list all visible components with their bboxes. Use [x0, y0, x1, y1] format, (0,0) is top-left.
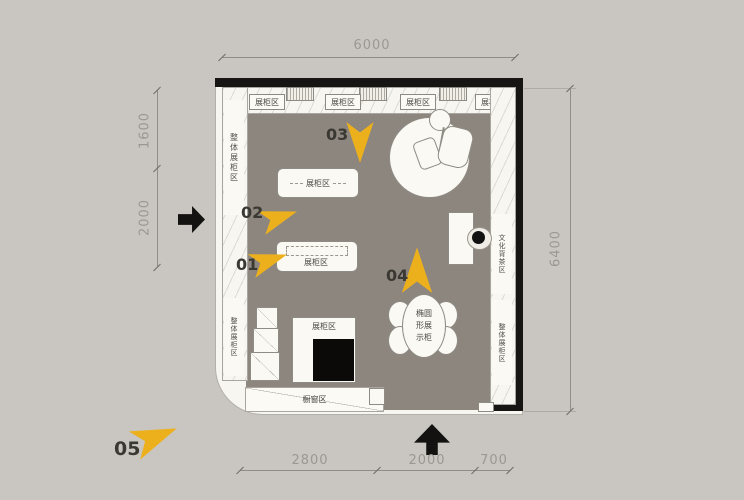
table-inner-dashed — [286, 246, 348, 256]
dim-value-top: 6000 — [342, 38, 402, 53]
dim-line-left — [157, 90, 158, 267]
zone-label-text: 展柜区 — [331, 97, 355, 108]
zone-label-top-cabinet-2: 展柜区 — [325, 94, 361, 110]
step-box-2 — [253, 328, 279, 353]
dim-line-top — [222, 57, 515, 58]
oval-display-label-line2: 形展 — [416, 320, 432, 332]
entrance-post-right — [478, 402, 494, 412]
dim-value-bottom-left: 2800 — [280, 453, 340, 468]
marker-03-label: 03 — [326, 125, 348, 144]
dim-value-bottom-right: 700 — [476, 453, 512, 468]
zone-label-top-cabinet-1: 展柜区 — [249, 94, 285, 110]
dim-value-right: 6400 — [549, 221, 564, 277]
zone-label-top-cabinet-3: 展柜区 — [400, 94, 436, 110]
oval-display-label-line1: 椭圆 — [416, 308, 432, 320]
entrance-post-left — [369, 388, 385, 405]
zone-label-text: 展柜区 — [406, 97, 430, 108]
oval-display-label-line3: 示柜 — [416, 332, 432, 344]
wall-top — [215, 78, 523, 87]
dim-value-bottom-mid: 2000 — [397, 453, 457, 468]
entry-arrow-bottom-icon — [414, 424, 450, 455]
marker-01-label: 01 — [236, 255, 258, 274]
display-table-a-label: 展柜区 — [306, 178, 330, 189]
zone-label-right-lower: 整体展柜区 — [492, 300, 512, 385]
display-table-a: 展柜区 — [277, 168, 359, 198]
zone-label-right-middle: 文化背茶区 — [492, 214, 512, 294]
square-display: 展柜区 — [292, 317, 356, 383]
oval-display-center: 椭圆 形展 示柜 — [402, 294, 446, 358]
marker-03-arrow-icon — [346, 116, 375, 164]
dim-value-left-upper: 1600 — [138, 103, 153, 159]
cabinet-divider-1 — [286, 87, 314, 101]
zone-label-text: 展柜区 — [255, 97, 279, 108]
table-dash — [290, 183, 303, 184]
window-display-strip: 橱窗区 — [245, 387, 384, 412]
marker-02-label: 02 — [241, 203, 263, 222]
cabinet-divider-3 — [439, 87, 467, 101]
entry-arrow-left-icon — [178, 206, 205, 233]
dim-value-left-lower: 2000 — [138, 190, 153, 246]
floor-plan-canvas: 展柜区 展柜区 展柜区 展柜区 整体展柜区 整体展柜区 文化背茶区 整体展柜区 … — [0, 0, 744, 500]
square-display-label: 展柜区 — [293, 321, 355, 332]
step-box-3 — [250, 352, 280, 381]
table-dash — [333, 183, 346, 184]
zone-label-left-upper: 整体展柜区 — [224, 100, 244, 215]
dim-line-right — [570, 88, 571, 412]
cabinet-divider-2 — [359, 87, 387, 101]
person-head — [472, 231, 485, 244]
marker-05-label: 05 — [114, 438, 140, 460]
window-display-label: 橱窗区 — [303, 394, 327, 405]
square-display-black-block — [313, 339, 354, 381]
marker-04-label: 04 — [386, 266, 408, 285]
zone-label-left-lower: 整体展柜区 — [224, 298, 244, 376]
step-box-1 — [256, 307, 278, 329]
